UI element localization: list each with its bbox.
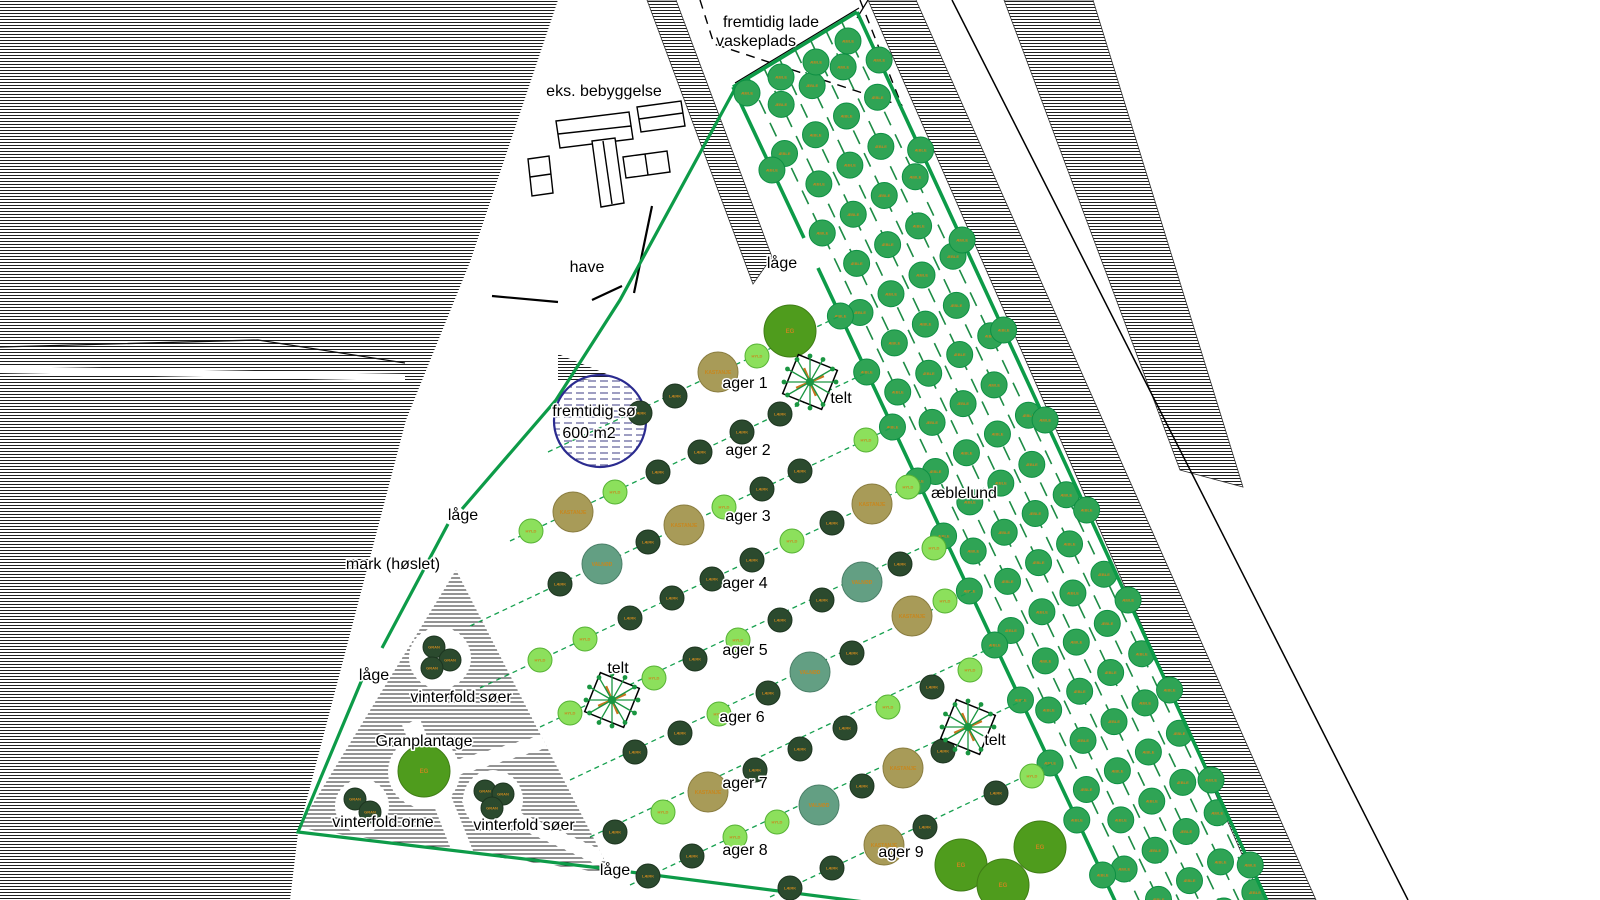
tree-laerk: LÆRK (740, 548, 764, 572)
tent-label-1: telt (830, 390, 852, 407)
tent-spoke-dot (636, 698, 641, 703)
tree-laerk: LÆRK (636, 530, 660, 554)
tree-laerk: LÆRK (984, 781, 1008, 805)
future-barn-label-2: vaskeplads (716, 33, 796, 50)
tree-aeble: ÆBLE (1170, 769, 1196, 795)
gate-top-label: låge (767, 254, 797, 272)
tree-gran: GRAN (421, 657, 443, 679)
tree-aeble: ÆBLE (1063, 629, 1089, 655)
field-label-ager8: ager 8 (722, 842, 767, 859)
tree-aeble: ÆBLE (1036, 697, 1062, 723)
gate-left-label: låge (448, 506, 478, 524)
tree-aeble: ÆBLE (943, 292, 969, 318)
tree-eg: EG (764, 305, 816, 357)
existing-buildings-label: eks. bebyggelse (546, 83, 662, 100)
tree-laerk: LÆRK (750, 477, 774, 501)
tree-aeble: ÆBLE (834, 103, 860, 129)
hay-field-label: mark (høslet) (346, 556, 440, 573)
tent-spoke-dot (785, 367, 790, 372)
tent-spoke-dot (597, 720, 602, 725)
tree-valnoed: VALNØD (842, 562, 882, 602)
tent-spoke-dot (795, 357, 800, 362)
tree-aeble: ÆBLE (991, 519, 1017, 545)
tree-aeble: ÆBLE (982, 632, 1008, 658)
tent-spoke-dot (966, 699, 971, 704)
tree-aeble: ÆBLE (1139, 788, 1165, 814)
tree-aeble: ÆBLE (1019, 451, 1045, 477)
tree-aeble: ÆBLE (806, 171, 832, 197)
tree-hyld: HYLD (528, 648, 552, 672)
tree-hyld: HYLD (780, 529, 804, 553)
tent-spoke-dot (830, 367, 835, 372)
tree-aeble: ÆBLE (1198, 767, 1224, 793)
tree-aeble: ÆBLE (960, 538, 986, 564)
field-label-ager4: ager 4 (722, 575, 767, 592)
tent-spoke-dot (821, 357, 826, 362)
tree-aeble: ÆBLE (995, 568, 1021, 594)
tree-aeble: ÆBLE (1104, 758, 1130, 784)
tree-eg: EG (1014, 821, 1066, 873)
garden-label: have (570, 259, 605, 276)
tree-aeble: ÆBLE (866, 47, 892, 73)
tent-center-dot (964, 723, 972, 731)
tent-spoke-dot (943, 712, 948, 717)
gate-left2-label: låge (359, 666, 389, 684)
road-edge-line (952, 0, 1408, 900)
tree-aeble: ÆBLE (1176, 868, 1202, 894)
tree-aeble: ÆBLE (947, 342, 973, 368)
tree-aeble: ÆBLE (809, 220, 835, 246)
winter-fold-sows-top-label: vinterfold søer (410, 689, 512, 706)
tent-spoke-dot (610, 724, 615, 729)
field-label-ager2: ager 2 (725, 442, 770, 459)
tree-aeble: ÆBLE (1157, 677, 1183, 703)
tent-spoke-dot (795, 402, 800, 407)
tree-laerk: LÆRK (663, 384, 687, 408)
tree-aeble: ÆBLE (1108, 807, 1134, 833)
tree-laerk: LÆRK (668, 721, 692, 745)
tree-laerk: LÆRK (888, 552, 912, 576)
tent-spoke-dot (632, 685, 637, 690)
tree-aeble: ÆBLE (950, 391, 976, 417)
tree-aeble: ÆBLE (830, 54, 856, 80)
tree-aeble: ÆBLE (1067, 678, 1093, 704)
tree-aeble: ÆBLE (768, 91, 794, 117)
tent-spoke-dot (979, 702, 984, 707)
tree-aeble: ÆBLE (1145, 886, 1171, 900)
tree-laerk: LÆRK (788, 737, 812, 761)
tree-aeble: ÆBLE (879, 414, 905, 440)
tree-aeble: ÆBLE (1098, 660, 1124, 686)
tree-hyld: HYLD (603, 480, 627, 504)
tree-laerk: LÆRK (788, 459, 812, 483)
tree-laerk: LÆRK (920, 675, 944, 699)
tent-spoke-dot (821, 402, 826, 407)
garden-fence-1 (492, 296, 558, 302)
tree-laerk: LÆRK (730, 420, 754, 444)
tent-spoke-dot (623, 720, 628, 725)
tree-aeble: ÆBLE (956, 578, 982, 604)
tent-spoke-dot (808, 354, 813, 359)
tree-aeble: ÆBLE (865, 84, 891, 110)
tree-laerk: LÆRK (680, 844, 704, 868)
tent-spoke-dot (785, 393, 790, 398)
field-label-ager1: ager 1 (722, 375, 767, 392)
tent-spoke-dot (979, 747, 984, 752)
tree-hyld: HYLD (745, 344, 769, 368)
tree-aeble: ÆBLE (1060, 580, 1086, 606)
tree-aeble: ÆBLE (871, 183, 897, 209)
tent-spoke-dot (966, 751, 971, 756)
tent-label-3: telt (984, 732, 1006, 749)
tree-laerk: LÆRK (768, 402, 792, 426)
tree-valnoed: VALNØD (790, 652, 830, 692)
tree-laerk: LÆRK (820, 511, 844, 535)
tent-spoke-dot (988, 712, 993, 717)
tree-laerk: LÆRK (756, 681, 780, 705)
field-label-ager3: ager 3 (725, 508, 770, 525)
tree-laerk: LÆRK (683, 647, 707, 671)
site-plan: ÆBLEÆBLEÆBLEÆBLEÆBLEÆBLEÆBLEÆBLEÆBLEÆBLE… (0, 0, 1600, 900)
tree-aeble: ÆBLE (799, 73, 825, 99)
tree-aeble: ÆBLE (1101, 709, 1127, 735)
tree-aeble: ÆBLE (827, 303, 853, 329)
tree-aeble: ÆBLE (1032, 407, 1058, 433)
tree-hyld: HYLD (558, 701, 582, 725)
tree-aeble: ÆBLE (919, 409, 945, 435)
tree-aeble: ÆBLE (854, 359, 880, 385)
tree-laerk: LÆRK (768, 608, 792, 632)
tree-laerk: LÆRK (660, 586, 684, 610)
field-label-ager5: ager 5 (722, 642, 767, 659)
tree-hyld: HYLD (642, 666, 666, 690)
lake-label-2: 600 m2 (562, 425, 615, 442)
tent-spoke-dot (782, 380, 787, 385)
tree-laerk: LÆRK (913, 815, 937, 839)
tree-laerk: LÆRK (688, 440, 712, 464)
tree-hyld: HYLD (651, 800, 675, 824)
tree-hyld: HYLD (854, 428, 878, 452)
tent-spoke-dot (992, 725, 997, 730)
tree-hyld: HYLD (876, 695, 900, 719)
tent-spoke-dot (632, 711, 637, 716)
tree-laerk: LÆRK (603, 820, 627, 844)
tree-aeble: ÆBLE (1029, 599, 1055, 625)
tent-spoke-dot (834, 380, 839, 385)
tree-aeble: ÆBLE (1032, 648, 1058, 674)
tree-laerk: LÆRK (623, 740, 647, 764)
tree-aeble: ÆBLE (906, 213, 932, 239)
tree-laerk: LÆRK (833, 716, 857, 740)
tree-aeble: ÆBLE (909, 262, 935, 288)
tree-hyld: HYLD (933, 589, 957, 613)
tent-spoke-dot (943, 738, 948, 743)
tent-spoke-dot (953, 702, 958, 707)
tree-laerk: LÆRK (850, 774, 874, 798)
tree-kastanje: KASTANJE (553, 492, 593, 532)
tree-valnoed: VALNØD (582, 544, 622, 584)
tree-hyld: HYLD (922, 536, 946, 560)
garden-fence-2 (592, 286, 622, 300)
tree-laerk: LÆRK (700, 567, 724, 591)
tree-laerk: LÆRK (778, 876, 802, 900)
boundary-seg-d (622, 871, 888, 900)
tree-aeble: ÆBLE (902, 164, 928, 190)
tree-aeble: ÆBLE (885, 379, 911, 405)
tree-aeble: ÆBLE (1057, 531, 1083, 557)
field-label-ager7: ager 7 (722, 775, 767, 792)
tree-aeble: ÆBLE (837, 152, 863, 178)
lake-label-1: fremtidig sø (552, 403, 636, 420)
tree-aeble: ÆBLE (991, 317, 1017, 343)
tree-eg: EG (398, 745, 450, 797)
tree-hyld: HYLD (573, 627, 597, 651)
tree-laerk: LÆRK (820, 856, 844, 880)
tree-aeble: ÆBLE (1074, 497, 1100, 523)
tree-aeble: ÆBLE (1022, 501, 1048, 527)
tree-aeble: ÆBLE (803, 49, 829, 75)
tree-hyld: HYLD (896, 475, 920, 499)
tree-aeble: ÆBLE (768, 64, 794, 90)
tree-aeble: ÆBLE (881, 330, 907, 356)
tree-hyld: HYLD (519, 519, 543, 543)
tree-aeble: ÆBLE (1135, 739, 1161, 765)
tree-aeble: ÆBLE (844, 250, 870, 276)
tree-kastanje: KASTANJE (852, 484, 892, 524)
tree-aeble: ÆBLE (1237, 852, 1263, 878)
tree-aeble: ÆBLE (1115, 587, 1141, 613)
winter-fold-boar-label: vinterfold orne (332, 814, 433, 831)
tree-aeble: ÆBLE (984, 421, 1010, 447)
tree-aeble: ÆBLE (1073, 777, 1099, 803)
tree-kastanje: KASTANJE (664, 505, 704, 545)
field-label-ager9: ager 9 (878, 844, 923, 861)
tree-aeble: ÆBLE (1064, 807, 1090, 833)
tree-aeble: ÆBLE (916, 360, 942, 386)
apple-grove-label: æblelund (931, 485, 997, 502)
tree-aeble: ÆBLE (949, 227, 975, 253)
tree-aeble: ÆBLE (875, 232, 901, 258)
tree-aeble: ÆBLE (759, 157, 785, 183)
future-barn-label-1: fremtidig lade (723, 14, 819, 31)
tree-hyld: HYLD (765, 810, 789, 834)
tree-hyld: HYLD (958, 658, 982, 682)
tent-center-dot (806, 378, 814, 386)
site-plan-svg: ÆBLEÆBLEÆBLEÆBLEÆBLEÆBLEÆBLEÆBLEÆBLEÆBLE… (0, 0, 1600, 900)
tent-spoke-dot (587, 711, 592, 716)
tree-aeble: ÆBLE (878, 281, 904, 307)
tree-aeble: ÆBLE (840, 201, 866, 227)
gate-bottom-label: låge (600, 861, 630, 879)
tent-label-2: telt (607, 660, 629, 677)
tree-aeble: ÆBLE (1142, 837, 1168, 863)
tent-symbol (584, 672, 641, 729)
tree-aeble: ÆBLE (1090, 862, 1116, 888)
tree-aeble: ÆBLE (981, 372, 1007, 398)
tree-aeble: ÆBLE (1007, 687, 1033, 713)
tree-laerk: LÆRK (548, 572, 572, 596)
tree-aeble: ÆBLE (1173, 819, 1199, 845)
tree-laerk: LÆRK (810, 588, 834, 612)
tree-aeble: ÆBLE (953, 440, 979, 466)
tree-aeble: ÆBLE (868, 133, 894, 159)
winter-fold-sows-bottom-label: vinterfold søer (473, 817, 575, 834)
tent-spoke-dot (584, 698, 589, 703)
tent-spoke-dot (953, 747, 958, 752)
spruce-plantation-label: Granplantage (376, 733, 473, 750)
existing-buildings-group (528, 101, 685, 207)
tree-aeble: ÆBLE (1207, 849, 1233, 875)
tree-aeble: ÆBLE (912, 311, 938, 337)
tree-laerk: LÆRK (840, 641, 864, 665)
tree-aeble: ÆBLE (803, 122, 829, 148)
tree-kastanje: KASTANJE (883, 748, 923, 788)
tree-aeble: ÆBLE (1132, 690, 1158, 716)
tree-kastanje: KASTANJE (892, 596, 932, 636)
tree-aeble: ÆBLE (1094, 610, 1120, 636)
tent-spoke-dot (587, 685, 592, 690)
tent-spoke-dot (597, 675, 602, 680)
tree-aeble: ÆBLE (1026, 550, 1052, 576)
tree-valnoed: VALNØD (799, 785, 839, 825)
tree-aeble: ÆBLE (908, 137, 934, 163)
tree-gran: GRAN (481, 797, 503, 819)
field-label-ager6: ager 6 (719, 709, 764, 726)
tent-center-dot (608, 696, 616, 704)
tree-aeble: ÆBLE (835, 28, 861, 54)
tree-hyld: HYLD (1020, 764, 1044, 788)
tree-laerk: LÆRK (636, 864, 660, 888)
tree-aeble: ÆBLE (734, 80, 760, 106)
tree-laerk: LÆRK (618, 606, 642, 630)
tree-laerk: LÆRK (646, 460, 670, 484)
tree-aeble: ÆBLE (1070, 727, 1096, 753)
tent-spoke-dot (940, 725, 945, 730)
tent-spoke-dot (808, 406, 813, 411)
